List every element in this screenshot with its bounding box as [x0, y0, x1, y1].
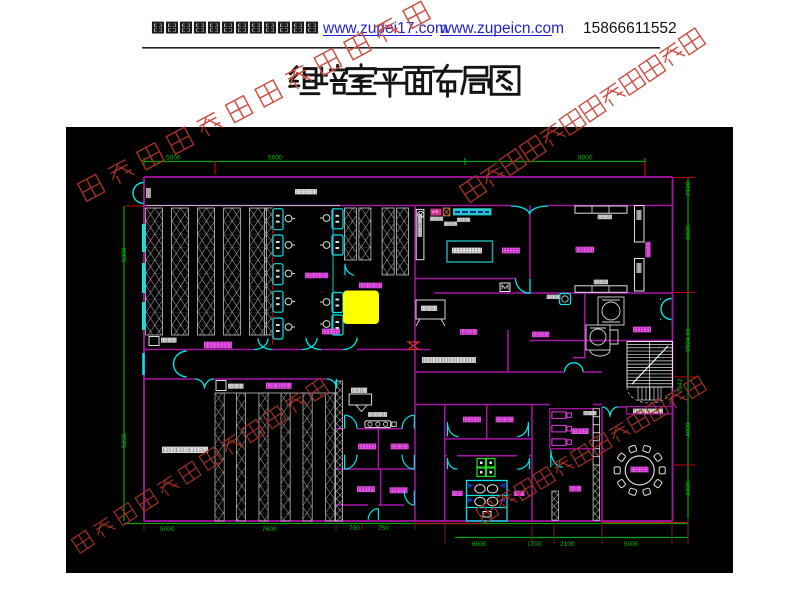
- svg-text:9000: 9000: [121, 247, 128, 262]
- svg-text:4000: 4000: [685, 481, 692, 496]
- svg-text:8000: 8000: [578, 155, 593, 162]
- svg-text:5000: 5000: [624, 541, 639, 548]
- svg-text:9024.16: 9024.16: [685, 328, 692, 352]
- svg-text:1700: 1700: [527, 541, 542, 548]
- svg-text:5000: 5000: [268, 155, 283, 162]
- svg-text:2042: 2042: [677, 378, 684, 393]
- svg-text:2100: 2100: [560, 541, 575, 548]
- svg-text:5000: 5000: [166, 155, 181, 162]
- svg-text:750: 750: [378, 525, 389, 532]
- svg-text:5000: 5000: [121, 433, 128, 448]
- svg-text:4000: 4000: [685, 422, 692, 437]
- svg-text:www.zupeicn.com: www.zupeicn.com: [439, 20, 564, 37]
- svg-text:5000: 5000: [160, 526, 175, 533]
- svg-text:700: 700: [349, 525, 360, 532]
- svg-text:6000: 6000: [472, 541, 487, 548]
- svg-text:15866611552: 15866611552: [583, 20, 677, 37]
- svg-text:7600: 7600: [262, 526, 277, 533]
- svg-text:2100: 2100: [685, 181, 692, 196]
- svg-text:6000: 6000: [685, 225, 692, 240]
